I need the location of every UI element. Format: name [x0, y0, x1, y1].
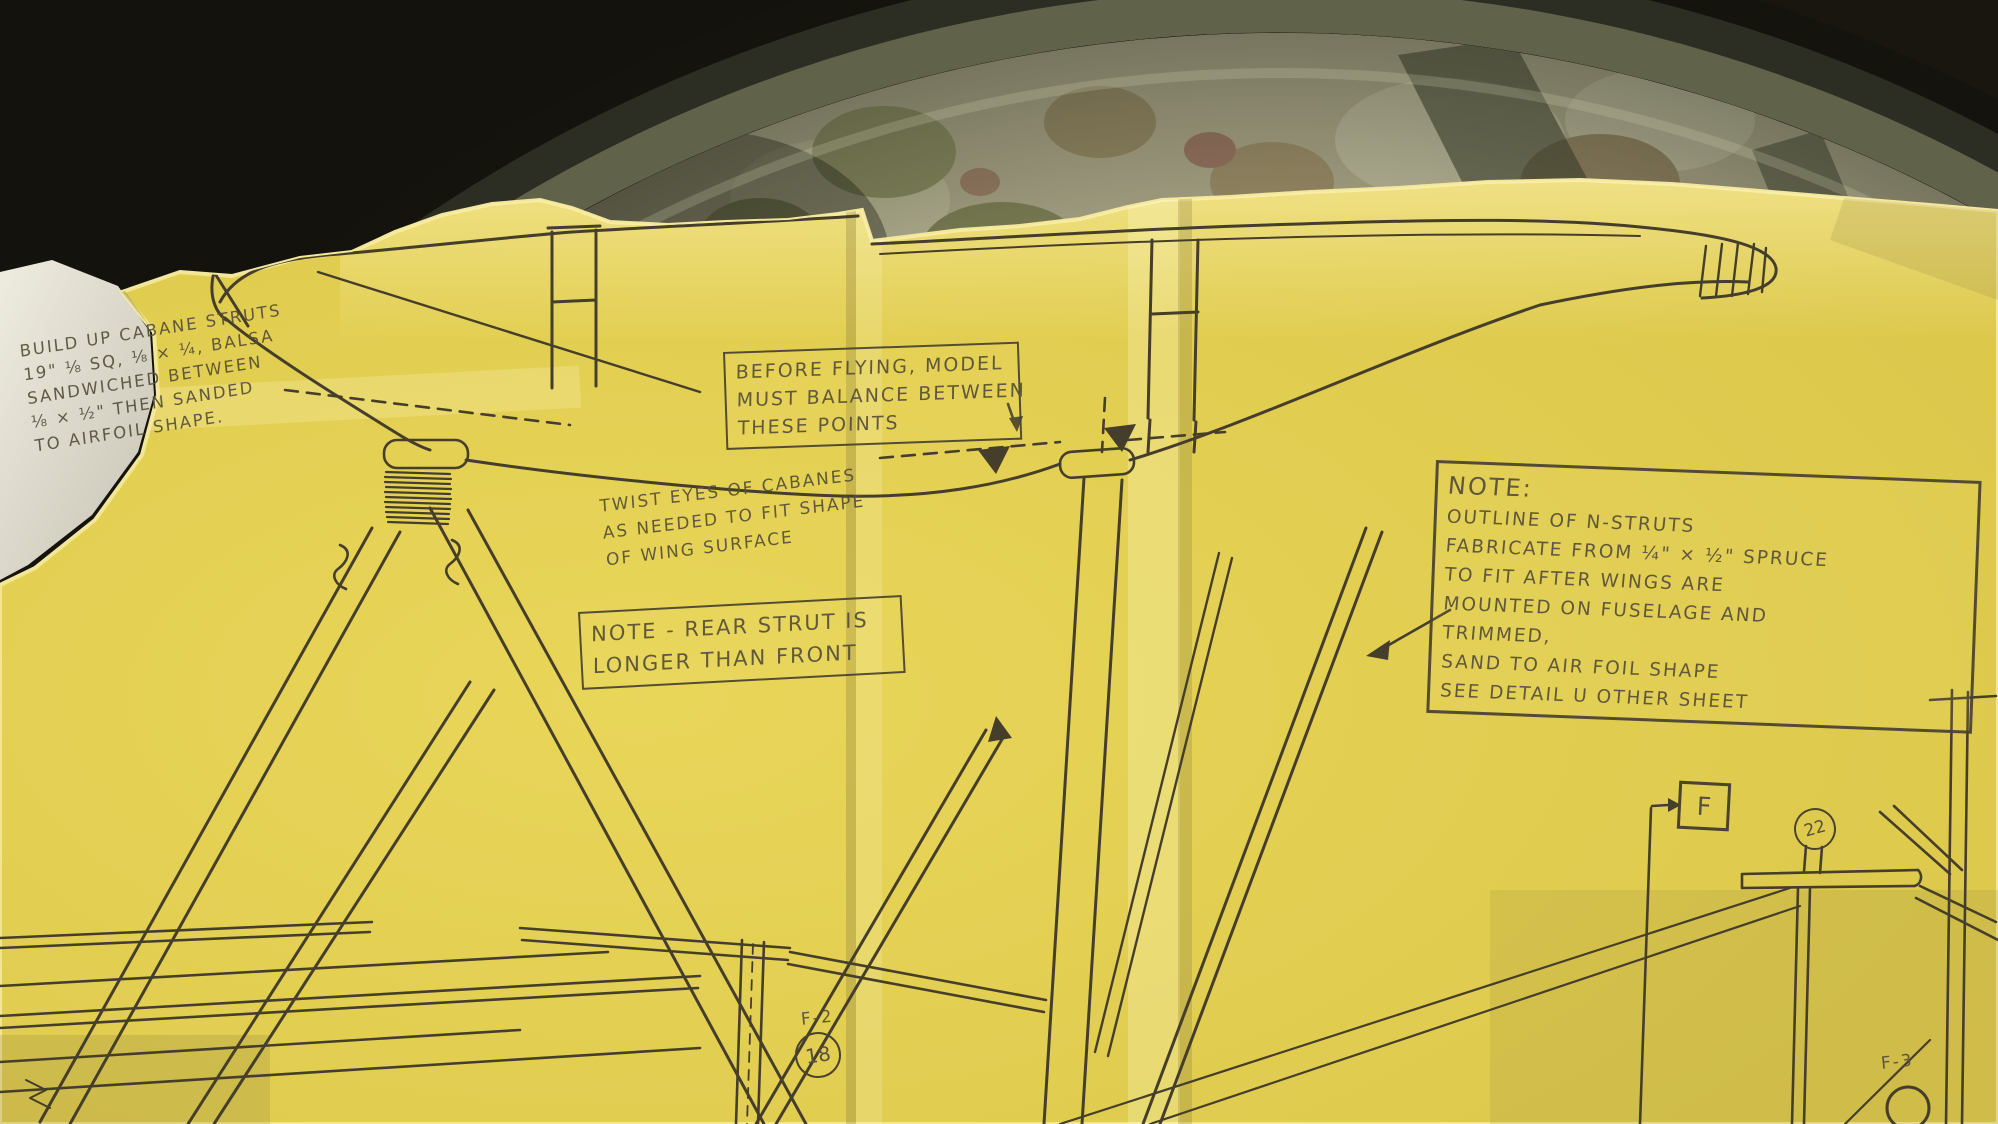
- label-text: F-3: [1880, 1051, 1915, 1074]
- label-f3: F-3: [1880, 1051, 1915, 1074]
- label-f2: F-2: [800, 1007, 835, 1030]
- label-text: 18: [804, 1041, 833, 1068]
- note-n-struts-box: NOTE: OUTLINE OF N-STRUTS FABRICATE FROM…: [1426, 460, 1981, 734]
- detail-box-f: F: [1677, 781, 1731, 832]
- label-text: 22: [1802, 816, 1828, 841]
- label-text: F: [1696, 791, 1712, 821]
- label-text: F-2: [800, 1007, 835, 1030]
- note-balance-box: BEFORE FLYING, MODEL MUST BALANCE BETWEE…: [723, 342, 1022, 450]
- photo-of-model-plane-plan: BUILD UP CABANE STRUTS 19" ⅛ SQ, ⅛ × ¼, …: [0, 0, 1998, 1124]
